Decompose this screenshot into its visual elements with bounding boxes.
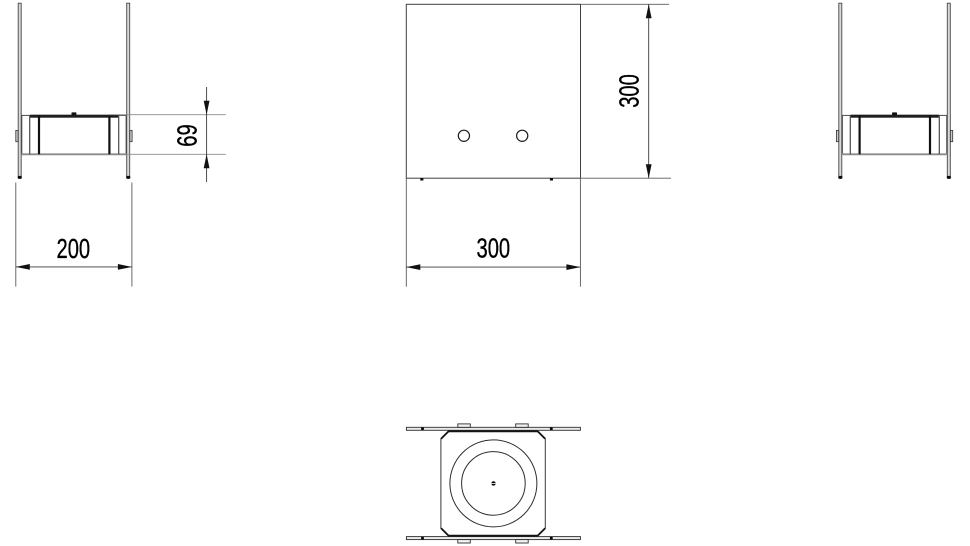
svg-text:69: 69 [172, 124, 203, 146]
svg-text:300: 300 [476, 234, 510, 265]
svg-text:300: 300 [614, 74, 645, 108]
svg-text:200: 200 [56, 234, 90, 265]
